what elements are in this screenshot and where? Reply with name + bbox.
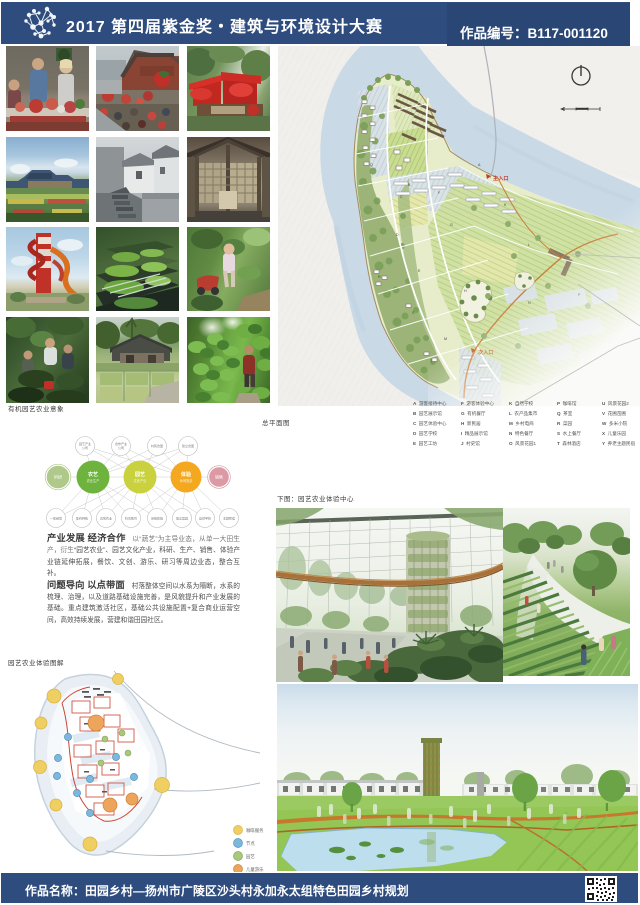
svg-text:科研: 科研 bbox=[54, 474, 62, 480]
svg-text:园艺: 园艺 bbox=[135, 471, 145, 478]
svg-text:农艺: 农艺 bbox=[87, 471, 98, 478]
svg-text:主入口: 主入口 bbox=[493, 174, 509, 182]
svg-text:休闲旅游: 休闲旅游 bbox=[180, 478, 194, 483]
svg-text:园艺: 园艺 bbox=[246, 854, 255, 860]
svg-text:农业生产: 农业生产 bbox=[87, 478, 100, 483]
svg-text:慢享菜园: 慢享菜园 bbox=[176, 516, 188, 521]
svg-text:采摘体验: 采摘体验 bbox=[151, 516, 163, 521]
svg-text:科普教育: 科普教育 bbox=[125, 516, 137, 521]
svg-text:自然学校: 自然学校 bbox=[199, 516, 211, 521]
svg-text:D: D bbox=[396, 233, 399, 237]
svg-text:C: C bbox=[400, 195, 403, 199]
svg-text:主题民宿: 主题民宿 bbox=[223, 516, 235, 521]
svg-text:体验: 体验 bbox=[181, 471, 191, 478]
svg-text:节点: 节点 bbox=[246, 841, 255, 847]
svg-text:村民合盟: 村民合盟 bbox=[151, 443, 163, 448]
svg-text:咖啡服务: 咖啡服务 bbox=[246, 827, 264, 834]
svg-text:Q: Q bbox=[370, 163, 373, 167]
svg-text:集约种植: 集约种植 bbox=[76, 516, 88, 521]
svg-text:建立合盟: 建立合盟 bbox=[182, 443, 194, 448]
svg-text:一体经营: 一体经营 bbox=[50, 516, 62, 521]
svg-text:R: R bbox=[378, 275, 381, 279]
svg-text:高效农业: 高效农业 bbox=[100, 516, 112, 521]
svg-text:儿童游乐: 儿童游乐 bbox=[246, 866, 264, 872]
svg-text:文化产业: 文化产业 bbox=[134, 478, 147, 483]
svg-text:公司: 公司 bbox=[82, 445, 88, 450]
svg-text:公司: 公司 bbox=[118, 445, 124, 450]
svg-text:销售: 销售 bbox=[215, 474, 223, 480]
